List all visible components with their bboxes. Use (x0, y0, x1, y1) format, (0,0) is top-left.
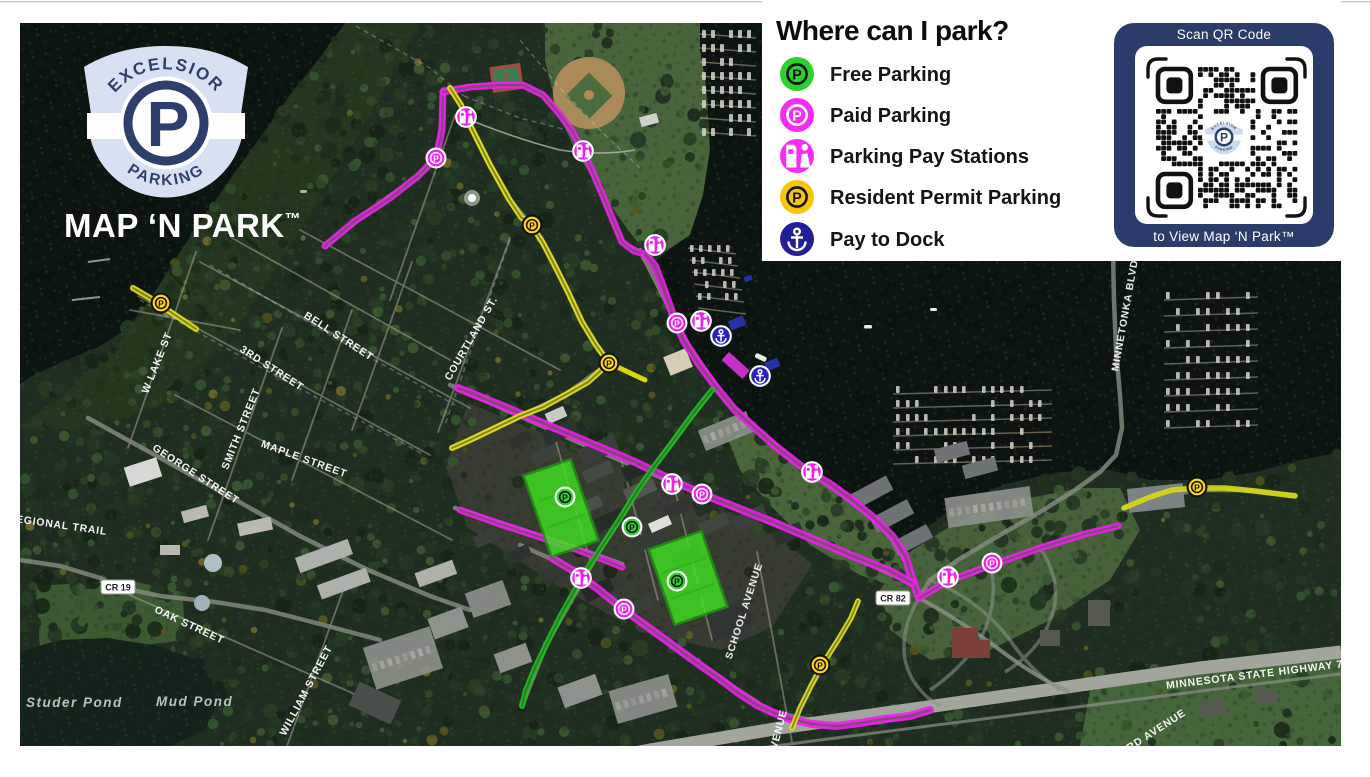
svg-text:P: P (147, 88, 190, 160)
svg-text:to View Map ‘N Park™: to View Map ‘N Park™ (1153, 229, 1295, 244)
svg-text:CR 82: CR 82 (880, 594, 906, 604)
svg-text:Resident Permit Parking: Resident Permit Parking (830, 187, 1061, 209)
svg-text:Mud Pond: Mud Pond (156, 694, 233, 709)
svg-text:CR 19: CR 19 (105, 583, 131, 593)
svg-text:Where can I park?: Where can I park? (776, 15, 1009, 46)
svg-text:P: P (792, 67, 802, 83)
svg-text:P: P (621, 604, 627, 614)
svg-text:Parking Pay Stations: Parking Pay Stations (830, 146, 1029, 168)
svg-text:Studer Pond: Studer Pond (26, 695, 123, 710)
svg-text:Free Parking: Free Parking (830, 64, 951, 86)
svg-text:P: P (989, 558, 995, 568)
svg-text:P: P (529, 220, 535, 230)
svg-text:P: P (158, 298, 164, 308)
svg-text:P: P (792, 190, 802, 206)
svg-text:P: P (562, 492, 568, 502)
svg-text:Pay to Dock: Pay to Dock (830, 229, 945, 251)
svg-text:P: P (433, 153, 439, 163)
svg-text:Scan QR Code: Scan QR Code (1177, 27, 1271, 42)
svg-text:P: P (792, 108, 802, 124)
svg-text:P: P (1220, 130, 1228, 144)
svg-text:P: P (1194, 482, 1200, 492)
svg-text:P: P (629, 522, 635, 532)
svg-text:P: P (817, 660, 823, 670)
svg-text:MAP ‘N PARK™: MAP ‘N PARK™ (64, 207, 301, 244)
svg-text:P: P (674, 318, 680, 328)
svg-text:P: P (699, 489, 705, 499)
svg-text:Paid Parking: Paid Parking (830, 105, 951, 127)
svg-text:P: P (674, 576, 680, 586)
svg-text:P: P (606, 358, 612, 368)
